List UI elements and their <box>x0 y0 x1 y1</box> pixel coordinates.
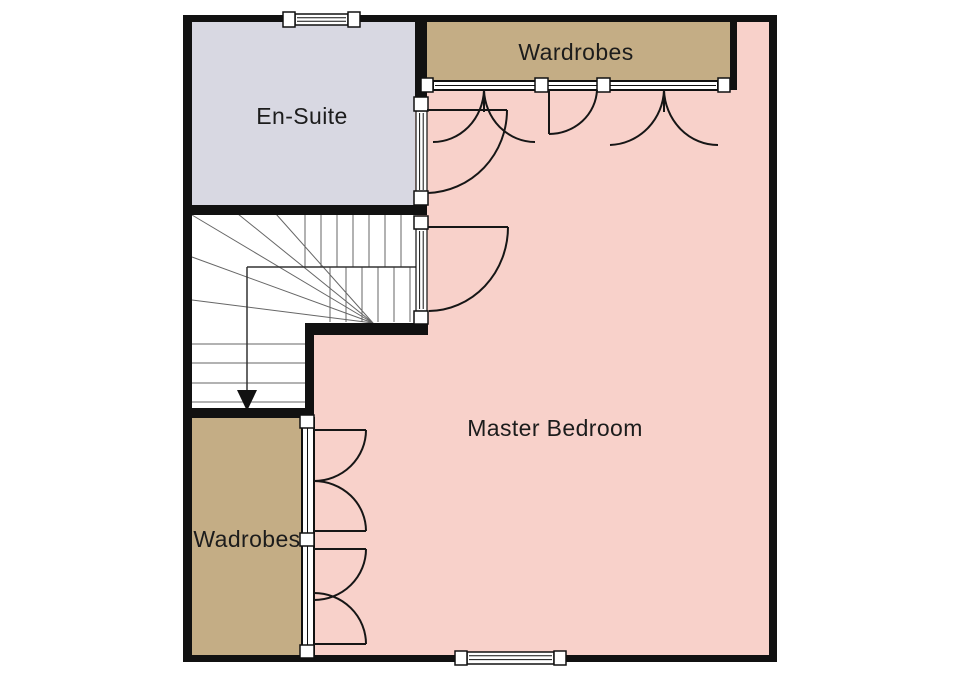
wardrobes-top-jamb <box>597 78 610 92</box>
door-bedroom-jamb-bottom <box>414 311 428 324</box>
wall-stairs-bedroom-horizontal <box>305 323 428 335</box>
window-top <box>283 12 360 27</box>
window-bottom-jamb-right <box>554 651 566 665</box>
wall-outer-top <box>183 15 777 22</box>
wardrobes-left-jamb <box>300 415 314 428</box>
wall-stairs-wardrobe-divider <box>183 408 314 418</box>
wardrobes-left-jamb <box>300 645 314 658</box>
wardrobes-left-jamb <box>300 533 314 546</box>
label-ensuite: En-Suite <box>256 103 347 129</box>
floorplan-page: En-Suite Wardrobes Master Bedroom Wadrob… <box>0 0 960 679</box>
door-bedroom-frame <box>416 229 427 311</box>
label-wardrobes-top: Wardrobes <box>518 39 633 65</box>
wardrobes-top-jamb <box>718 78 730 92</box>
window-top-glazing <box>295 14 348 25</box>
wall-outer-left <box>183 15 192 662</box>
wall-outer-right <box>769 15 777 662</box>
door-ensuite-frame <box>416 111 427 192</box>
wardrobes-left-face <box>300 415 314 658</box>
wall-stairs-lower-right <box>305 323 314 418</box>
wall-wardrobes-top-right <box>730 15 737 90</box>
wardrobes-top-jamb <box>421 78 433 92</box>
door-ensuite-jamb-bottom <box>414 191 428 205</box>
window-bottom <box>455 651 566 665</box>
window-top-jamb-right <box>348 12 360 27</box>
wall-ensuite-bottom <box>183 205 427 215</box>
window-bottom-jamb-left <box>455 651 467 665</box>
door-ensuite-jamb-top <box>414 97 428 111</box>
label-wardrobes-left: Wadrobes <box>193 526 300 552</box>
floorplan-canvas: En-Suite Wardrobes Master Bedroom Wadrob… <box>0 0 960 679</box>
door-bedroom-jamb-top <box>414 216 428 229</box>
label-master-bedroom: Master Bedroom <box>467 415 643 441</box>
wardrobes-top-jamb <box>535 78 548 92</box>
wardrobes-top-face <box>421 78 730 92</box>
window-top-jamb-left <box>283 12 295 27</box>
window-bottom-glazing <box>467 652 554 664</box>
